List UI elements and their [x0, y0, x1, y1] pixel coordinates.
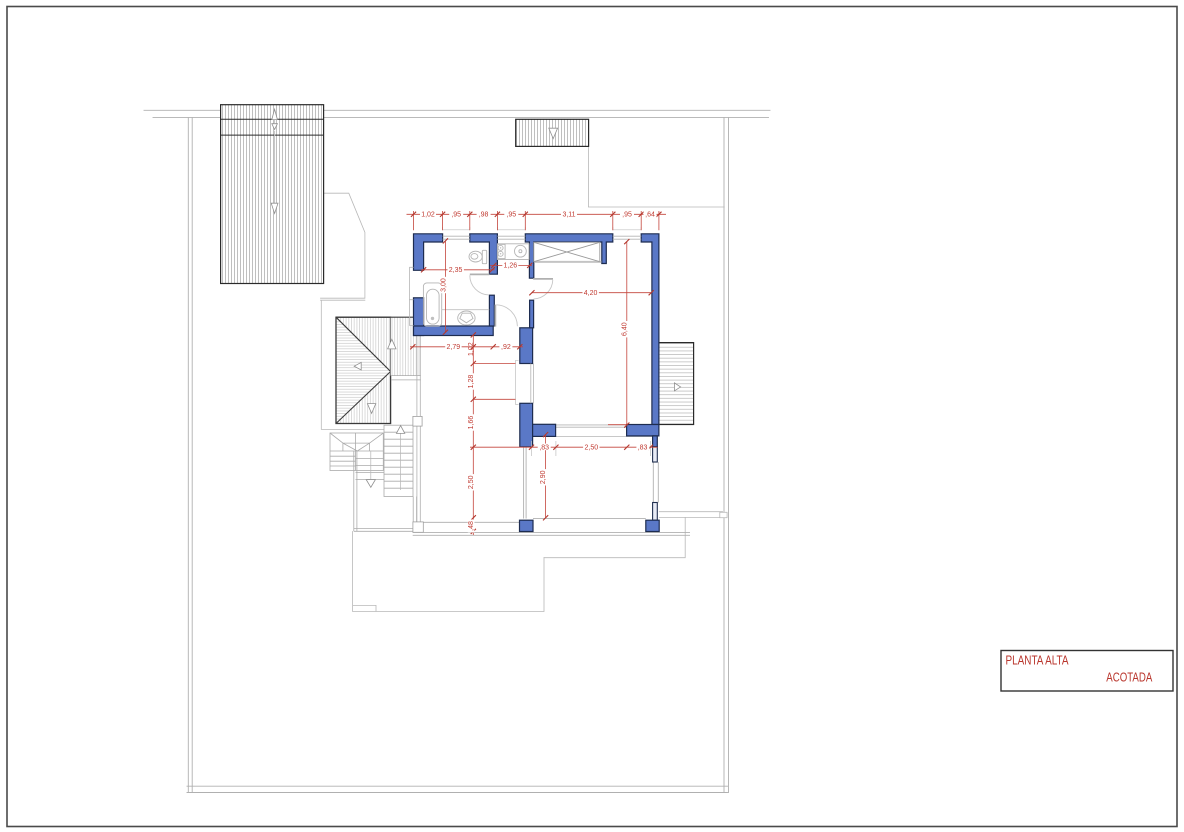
- svg-text:ACOTADA: ACOTADA: [1106, 671, 1153, 685]
- svg-text:6,40: 6,40: [622, 322, 629, 336]
- svg-text:2,35: 2,35: [449, 267, 463, 274]
- svg-text:,95: ,95: [622, 212, 632, 219]
- svg-text:2,50: 2,50: [468, 475, 475, 489]
- svg-text:,48: ,48: [468, 521, 475, 531]
- svg-text:1,02: 1,02: [421, 212, 435, 219]
- svg-text:PLANTA ALTA: PLANTA ALTA: [1006, 653, 1070, 667]
- svg-text:1,66: 1,66: [468, 416, 475, 430]
- svg-text:1,26: 1,26: [503, 263, 517, 270]
- svg-text:,92: ,92: [501, 344, 511, 351]
- svg-text:,83: ,83: [539, 444, 549, 451]
- svg-text:,83: ,83: [638, 444, 648, 451]
- svg-text:3,00: 3,00: [440, 278, 447, 292]
- svg-text:1,28: 1,28: [468, 375, 475, 389]
- svg-text:,64: ,64: [645, 212, 655, 219]
- svg-text:1,02: 1,02: [468, 342, 475, 356]
- svg-text:,98: ,98: [479, 212, 489, 219]
- svg-text:2,50: 2,50: [584, 444, 598, 451]
- svg-text:3,11: 3,11: [562, 212, 575, 219]
- svg-text:2,79: 2,79: [446, 344, 460, 351]
- svg-text:4,20: 4,20: [584, 290, 598, 297]
- svg-text:,95: ,95: [451, 212, 461, 219]
- svg-text:2,90: 2,90: [540, 470, 547, 484]
- svg-text:,95: ,95: [506, 212, 516, 219]
